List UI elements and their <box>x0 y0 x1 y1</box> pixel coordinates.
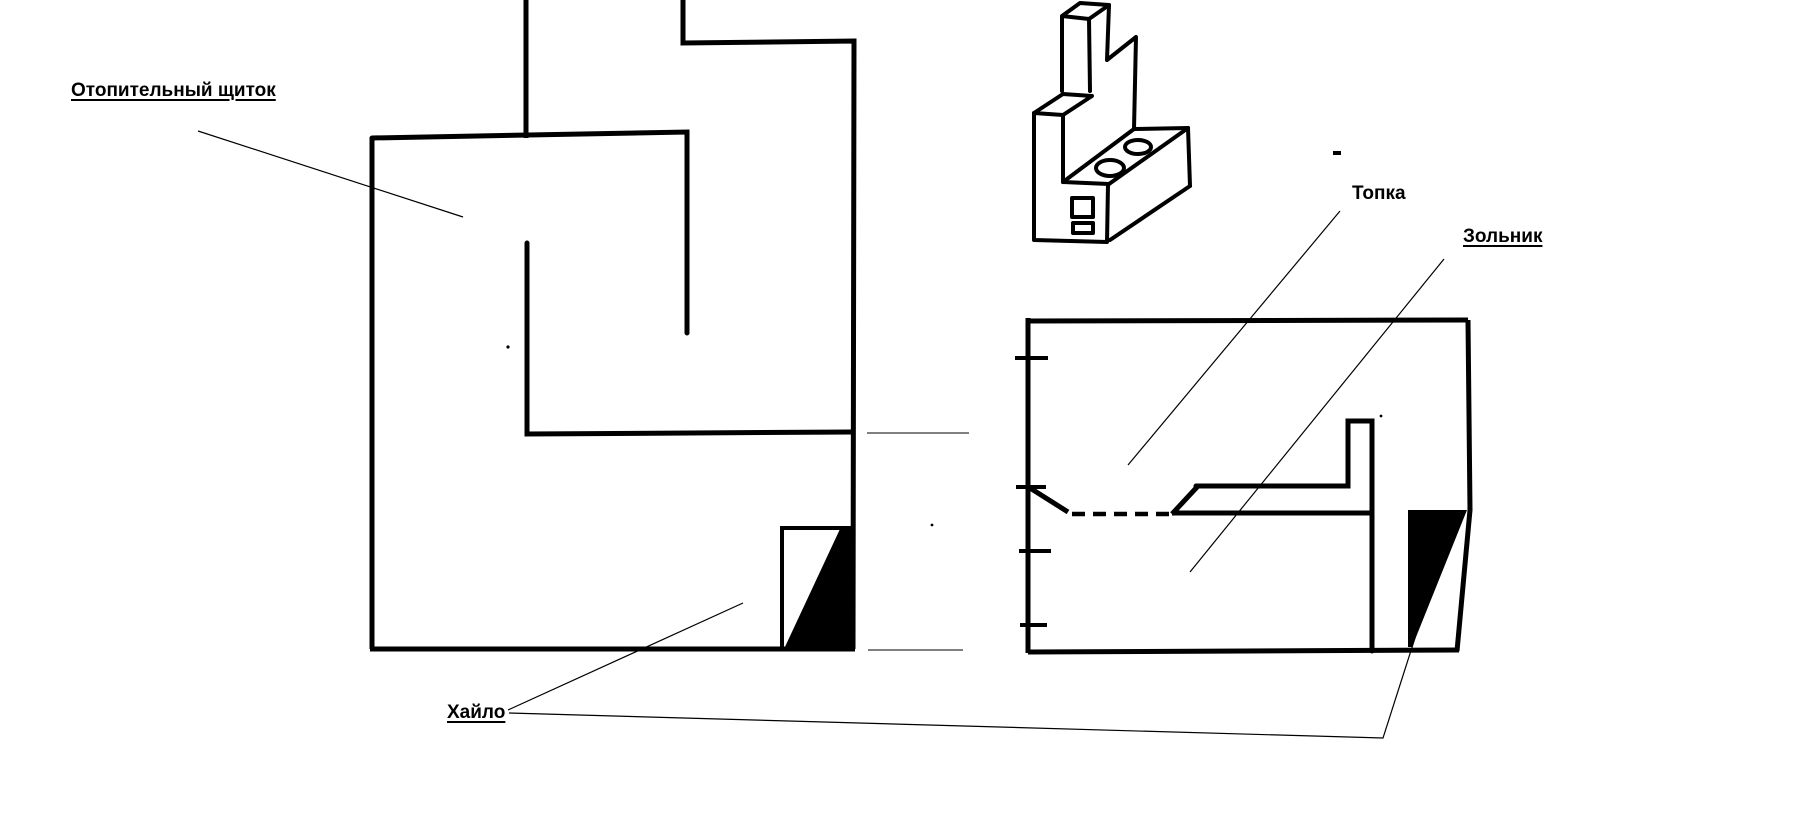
stove-3d-sketch <box>1034 3 1190 242</box>
stray-marks <box>506 153 1382 526</box>
burner-hole-front <box>1096 160 1124 176</box>
firebox-door <box>1072 198 1093 217</box>
flue-opening-label: Хайло <box>447 703 505 724</box>
sketch-body-right-edge <box>1188 128 1190 186</box>
hailo-opening-black-left <box>784 529 853 649</box>
firebox-label: Топка <box>1352 184 1406 205</box>
sketch-chimney-right-edge <box>1089 19 1090 91</box>
stove-box-bottom-edge <box>1028 650 1459 652</box>
sketch-back-step <box>1107 5 1136 129</box>
stray-dot-3 <box>1380 415 1383 418</box>
stove-box-right-edge <box>1457 320 1470 651</box>
leader-ash-pit <box>1190 259 1444 572</box>
sketch-top-face-front-edge <box>1063 182 1109 184</box>
burner-hole-back <box>1125 140 1151 154</box>
stray-dot-2 <box>931 524 934 527</box>
sketch-mantel-top-face <box>1034 94 1092 115</box>
shield-chimney-right-and-right-edge <box>683 0 854 649</box>
leader-hailo-right <box>509 513 1455 738</box>
notch-diagonal-line <box>1030 488 1068 512</box>
stray-dot-1 <box>506 345 509 348</box>
ash-pit-label: Зольник <box>1463 227 1542 248</box>
heating-shield-label: Отопительный щиток <box>71 81 276 102</box>
stove-diagram-svg <box>0 0 1795 829</box>
stove-section-figure <box>1015 318 1470 653</box>
leader-hailo-left <box>508 603 743 710</box>
sketch-chimney-top-face <box>1062 3 1109 19</box>
grate-diagonal-line <box>1172 486 1198 514</box>
leader-heating-shield <box>198 131 463 217</box>
heating-shield-figure <box>370 0 855 649</box>
sketch-body-bottom-edge <box>1110 186 1190 240</box>
connector-lines <box>867 433 969 650</box>
ash-door <box>1073 223 1093 233</box>
sketch-top-face-back-edge <box>1134 128 1188 129</box>
paint-drawing-canvas: Отопительный щиток Топка Зольник Хайло <box>0 0 1795 829</box>
